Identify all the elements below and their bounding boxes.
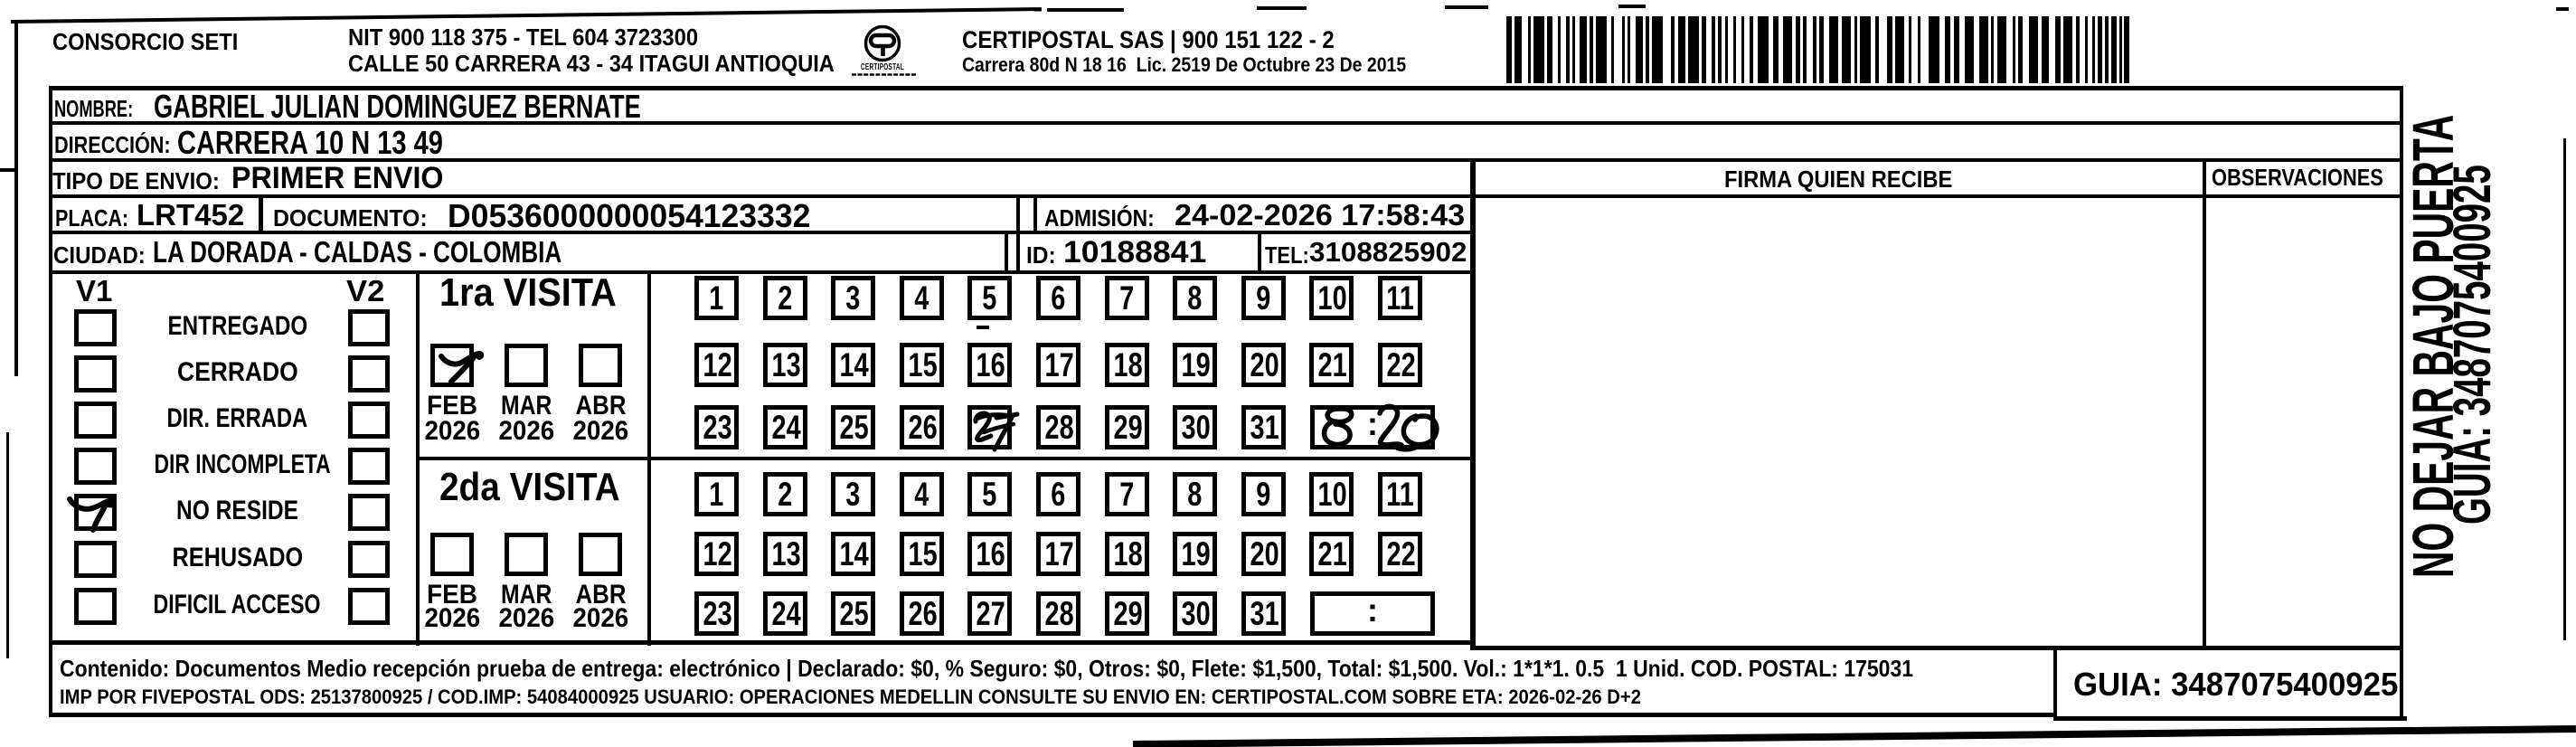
svg-text:CERTIPOSTAL: CERTIPOSTAL	[861, 61, 904, 71]
